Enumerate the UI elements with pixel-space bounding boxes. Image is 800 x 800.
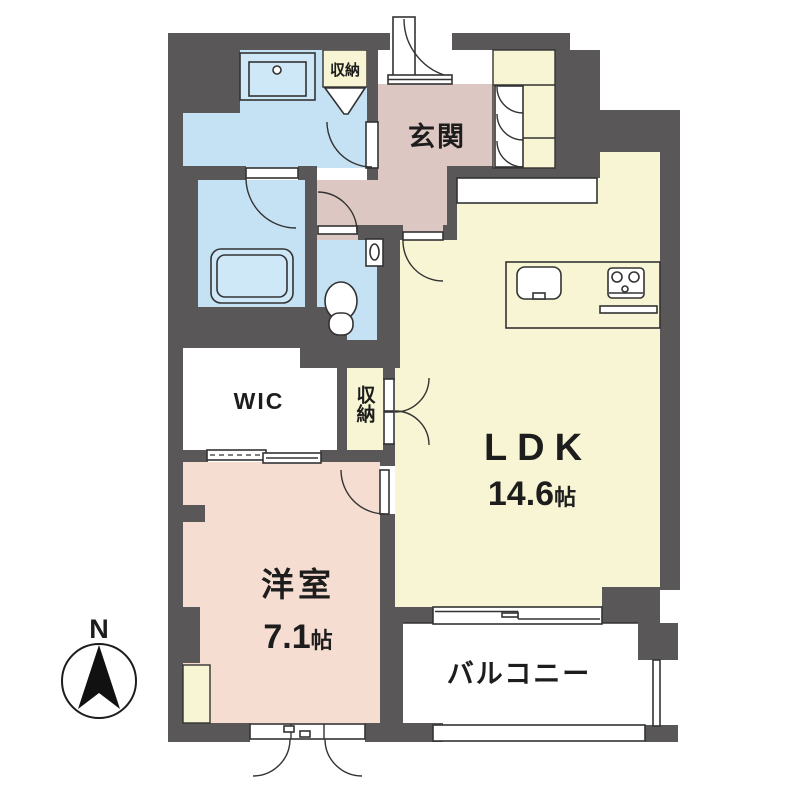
balcony-railing-bottom: [433, 725, 645, 741]
wall-washroom-bath-left: [168, 166, 246, 180]
wic-sliding-door: [207, 450, 321, 463]
wall-step-under: [600, 130, 660, 152]
wall-western-left-bump2: [183, 607, 200, 663]
wall-washroom-hall-lower: [367, 168, 378, 180]
entrance-label: 玄関: [408, 121, 466, 152]
compass-north-label: N: [89, 614, 109, 644]
floor-plan: 玄関 収納 WIC 収納 LDK 14.6帖 洋室 7.1帖 バルコニー N: [0, 0, 800, 800]
ldk-balcony-sliding-window: [433, 607, 602, 624]
balcony-label: バルコニー: [447, 659, 591, 689]
ldk-closet-label: 収納: [354, 385, 376, 423]
entrance-closet-label: 収納: [330, 61, 360, 79]
wall-topleft-chunk: [183, 50, 240, 113]
wall-balcony-bottomright: [645, 725, 678, 742]
wall-ldk-left-stub: [447, 178, 457, 240]
wall-toilet-bottom: [305, 340, 400, 368]
wall-right: [660, 110, 680, 590]
western-room-window: [250, 724, 365, 776]
vanity-sink: [240, 53, 315, 100]
wall-ldk-balcony-left: [395, 607, 433, 623]
wall-western-ldk-top: [380, 450, 395, 466]
kitchen-grill: [600, 306, 657, 313]
wall-bottom-left: [168, 723, 250, 742]
wall-western-ldk-bottom: [380, 514, 395, 607]
wall-wic-western-left: [168, 450, 208, 462]
kitchen-sink: [517, 267, 561, 299]
wall-left: [168, 33, 183, 742]
floor-plan-page: 玄関 収納 WIC 収納 LDK 14.6帖 洋室 7.1帖 バルコニー N: [0, 0, 800, 800]
wall-washroom-hall-upper: [367, 50, 378, 122]
entrance-counter: [457, 178, 597, 203]
western-room-label: 洋室: [261, 566, 335, 603]
wall-wic-closet-divider: [337, 368, 347, 450]
wall-balcony-topright: [638, 623, 678, 660]
wall-top-right: [452, 33, 570, 50]
wall-western-balcony-left: [380, 607, 403, 727]
balcony-railing-right: [653, 660, 660, 726]
wall-western-left-bump1: [183, 505, 205, 522]
wall-bottom-mid: [365, 723, 443, 742]
wic-label: WIC: [234, 388, 285, 414]
bathtub: [211, 249, 293, 303]
wall-top-left: [168, 33, 390, 50]
ldk-label: LDK: [484, 427, 592, 469]
wall-bath-left-chunk: [183, 180, 198, 307]
kitchen-island: [506, 262, 660, 328]
shoe-cabinet: [493, 50, 555, 168]
wall-ldk-step-bottom: [602, 587, 660, 623]
kitchen-stove: [608, 268, 644, 298]
compass: N: [62, 614, 136, 718]
pipe-space: [183, 665, 210, 723]
